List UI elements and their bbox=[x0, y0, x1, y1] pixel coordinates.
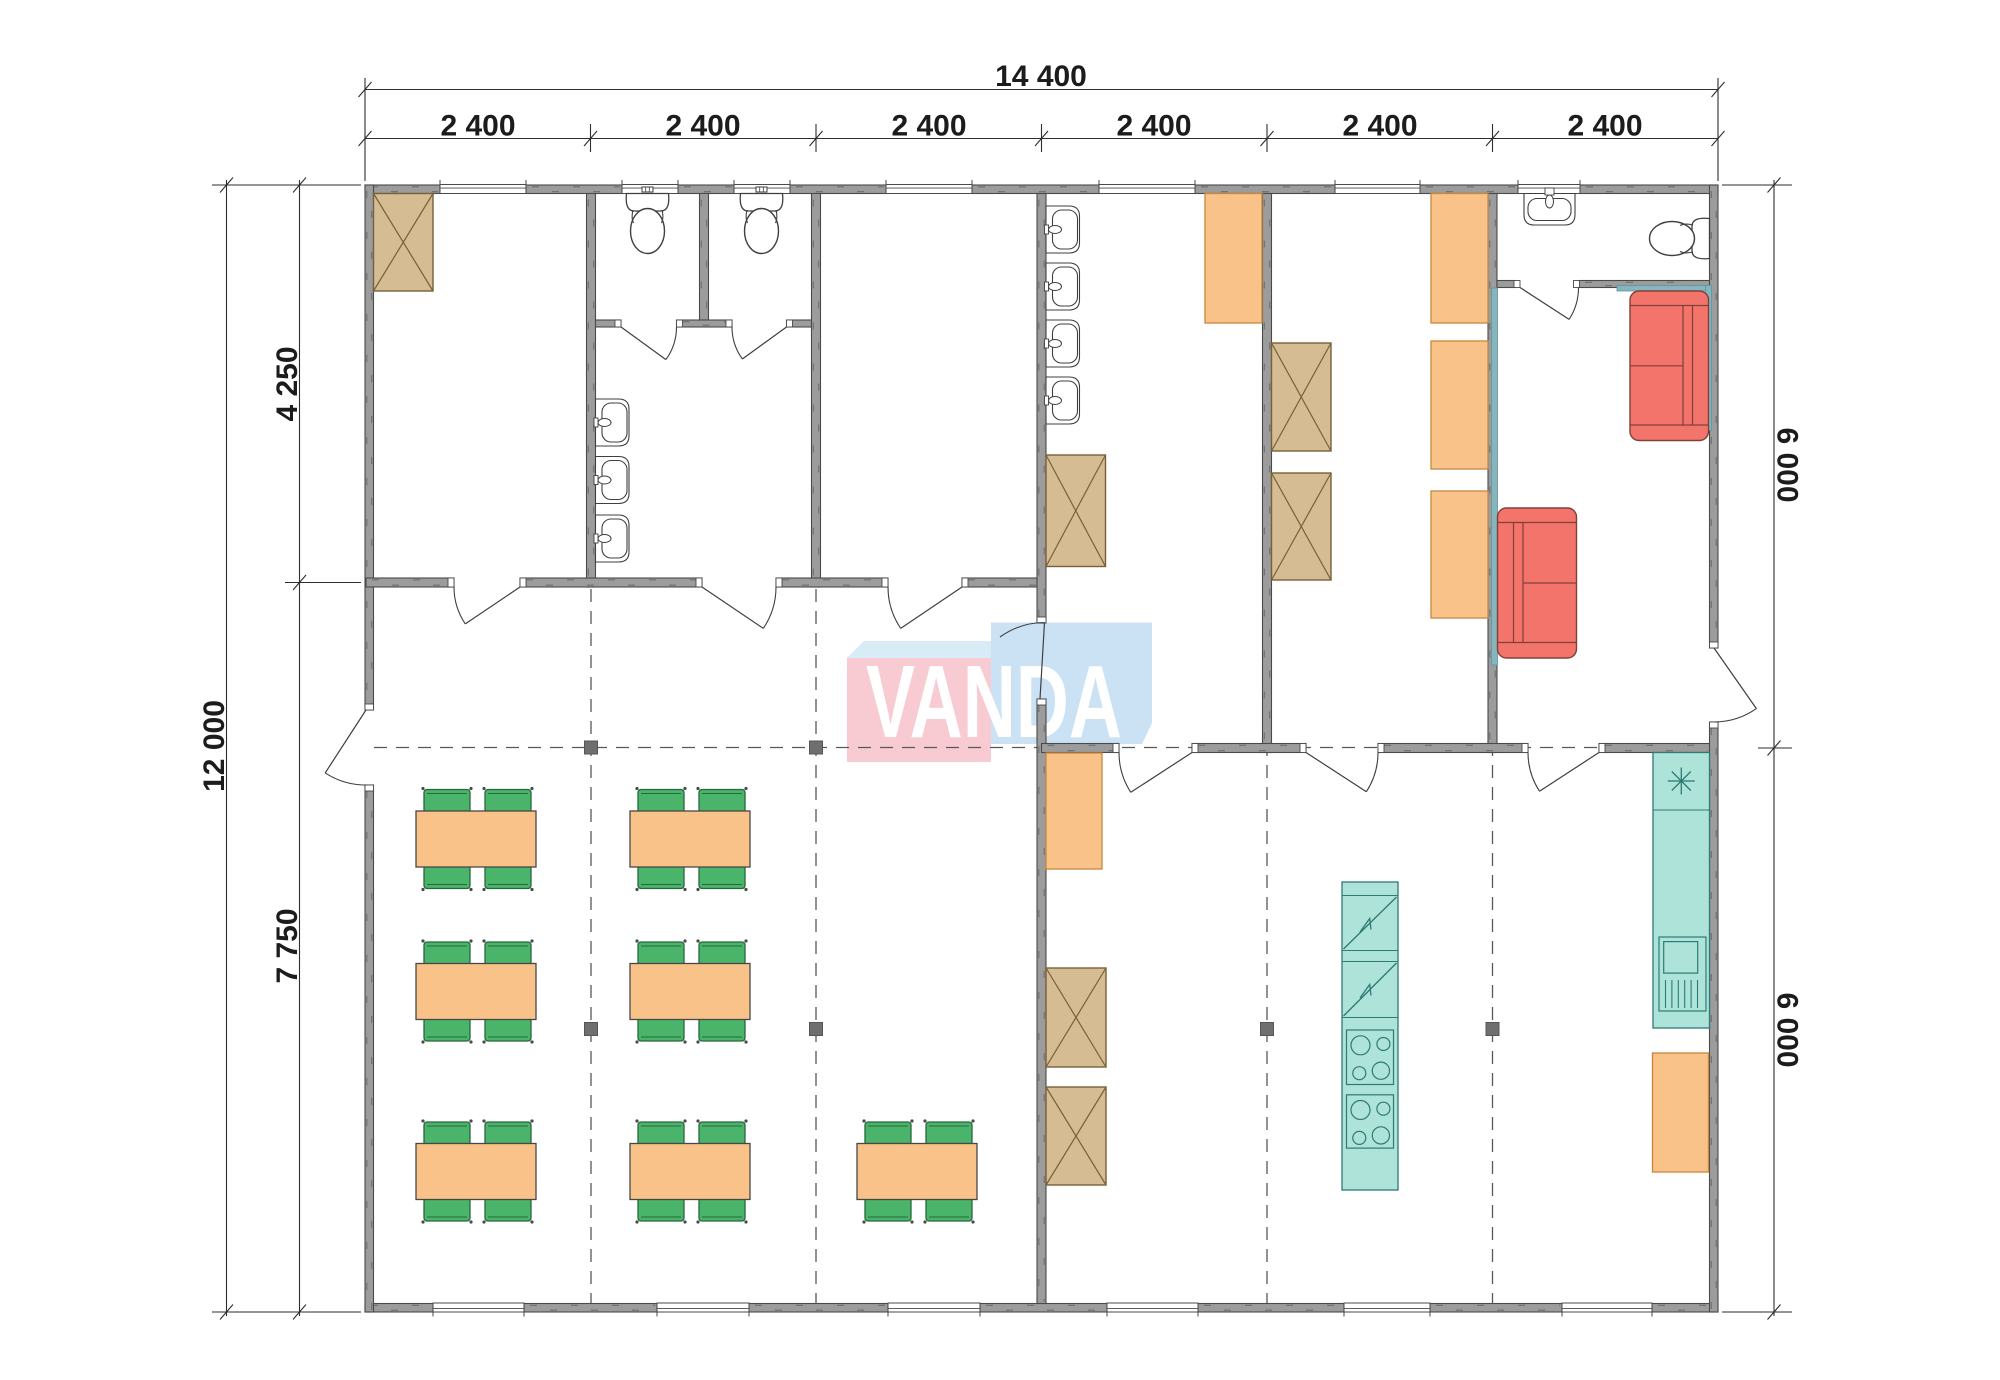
svg-text:6 000: 6 000 bbox=[1771, 992, 1804, 1067]
svg-text:2 400: 2 400 bbox=[1567, 110, 1642, 143]
svg-text:6 000: 6 000 bbox=[1771, 427, 1804, 502]
svg-text:2 400: 2 400 bbox=[665, 110, 740, 143]
svg-text:2 400: 2 400 bbox=[440, 110, 515, 143]
svg-text:4 250: 4 250 bbox=[271, 346, 304, 421]
svg-text:7 750: 7 750 bbox=[271, 908, 304, 983]
svg-text:2 400: 2 400 bbox=[1342, 110, 1417, 143]
svg-text:12 000: 12 000 bbox=[198, 700, 231, 792]
svg-text:VANDA: VANDA bbox=[866, 644, 1122, 759]
svg-text:2 400: 2 400 bbox=[1116, 110, 1191, 143]
svg-text:2 400: 2 400 bbox=[891, 110, 966, 143]
svg-text:14 400: 14 400 bbox=[995, 60, 1087, 93]
